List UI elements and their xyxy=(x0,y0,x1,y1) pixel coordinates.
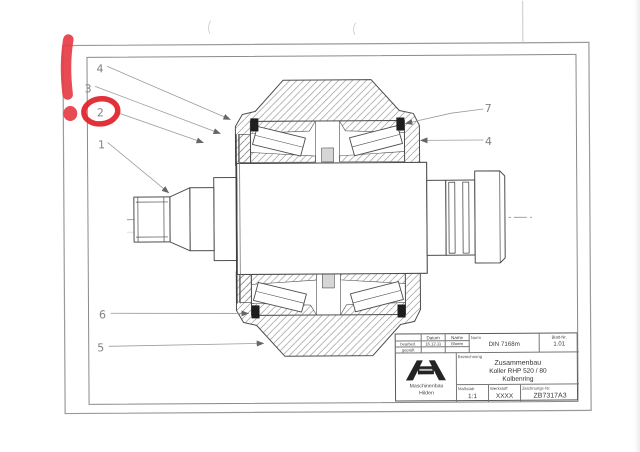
company-name-line1: Maschinenbau xyxy=(396,383,457,389)
seal-bottom-left xyxy=(251,305,259,318)
piston-ring-grooves xyxy=(446,180,475,255)
callout-7: 7 xyxy=(485,102,492,115)
assembly-drawing xyxy=(126,79,533,357)
tb-massstab-value: 1:1 xyxy=(457,393,488,400)
leader-5 xyxy=(109,343,264,346)
shaft-cylinder xyxy=(190,188,214,251)
callout-1: 1 xyxy=(98,138,105,151)
callout-2: 2 xyxy=(97,106,104,119)
paper: 4 3 2 1 7 4 6 5 Datum Name bearbeit. 16.… xyxy=(0,0,640,452)
drawing-title-line1: Zusammenbau xyxy=(457,359,579,367)
leader-4a xyxy=(107,66,230,121)
exclamation-mark-bar xyxy=(66,40,69,95)
tb-zeichnung-label: Zeichnungs-Nr. xyxy=(521,384,579,390)
tb-norm-label: Norm xyxy=(470,334,539,340)
tb-norm-cell: Norm DIN 7168m xyxy=(470,334,540,353)
company-logo xyxy=(404,357,448,381)
callout-5: 5 xyxy=(97,341,104,354)
tb-werkstoff-cell: Werkstoff XXXX xyxy=(489,385,521,402)
drawing-title-line3: Kolbenring xyxy=(457,375,579,383)
clamp-washer-bottom xyxy=(239,274,251,302)
tb-massstab-label: Maßstab xyxy=(457,385,488,391)
tb-werkstoff-value: XXXX xyxy=(489,393,520,400)
tb-blatt-value: 1.01 xyxy=(540,341,579,347)
seal-top-right xyxy=(396,117,404,130)
tb-bezeichnung-cell: Bezeichnung Zusammenbau Koller RHP 520 /… xyxy=(457,352,579,385)
shaft-collar xyxy=(214,178,238,261)
spline-end xyxy=(134,197,170,242)
drawing-title-line2: Koller RHP 520 / 80 xyxy=(457,367,579,375)
bearing-spacer xyxy=(322,274,334,288)
callout-6: 6 xyxy=(99,308,106,321)
shaft xyxy=(133,133,505,304)
scan-speck xyxy=(353,23,355,35)
shaft-right-step xyxy=(427,180,446,255)
tb-zeichnungsnr-cell: Zeichnungs-Nr. ZB7317A3 xyxy=(521,384,579,401)
title-block: Datum Name bearbeit. 16.12.11 Bloem gepr… xyxy=(395,332,578,401)
tb-massstab-cell: Maßstab 1:1 xyxy=(457,385,489,402)
callout-3: 3 xyxy=(85,82,92,95)
tb-werkstoff-label: Werkstoff xyxy=(489,385,520,391)
tb-blatt-label: Blatt-Nr. xyxy=(540,334,579,339)
scan-speck xyxy=(208,21,210,34)
tb-norm-value: DIN 7168m xyxy=(470,341,539,348)
leader-1 xyxy=(107,142,168,193)
tb-company-cell: Maschinenbau Hilden xyxy=(396,353,457,402)
company-name-line2: Hilden xyxy=(396,390,457,396)
leader-6 xyxy=(111,312,249,314)
shaft-main-body xyxy=(237,162,428,274)
exclamation-mark-dot xyxy=(63,106,77,121)
seal-bottom-right xyxy=(397,304,405,317)
leader-2 xyxy=(116,112,203,144)
shaft-taper xyxy=(170,188,190,251)
tb-zeichnung-value: ZB7317A3 xyxy=(521,392,579,399)
tapered-roller-bearing-top xyxy=(250,120,404,162)
tb-blatt-cell: Blatt-Nr. 1.01 xyxy=(540,333,579,352)
tapered-roller-bearing-bottom xyxy=(251,273,405,315)
scan-edge-shadow xyxy=(634,0,640,452)
clamp-washer-top xyxy=(238,134,250,162)
seal-top-left xyxy=(250,118,258,131)
shaft-right-end xyxy=(475,171,506,263)
scanned-drawing-sheet: 4 3 2 1 7 4 6 5 Datum Name bearbeit. 16.… xyxy=(0,0,640,452)
bearing-spacer xyxy=(322,148,334,162)
callout-4b: 4 xyxy=(485,135,492,148)
callout-4a: 4 xyxy=(96,62,103,75)
